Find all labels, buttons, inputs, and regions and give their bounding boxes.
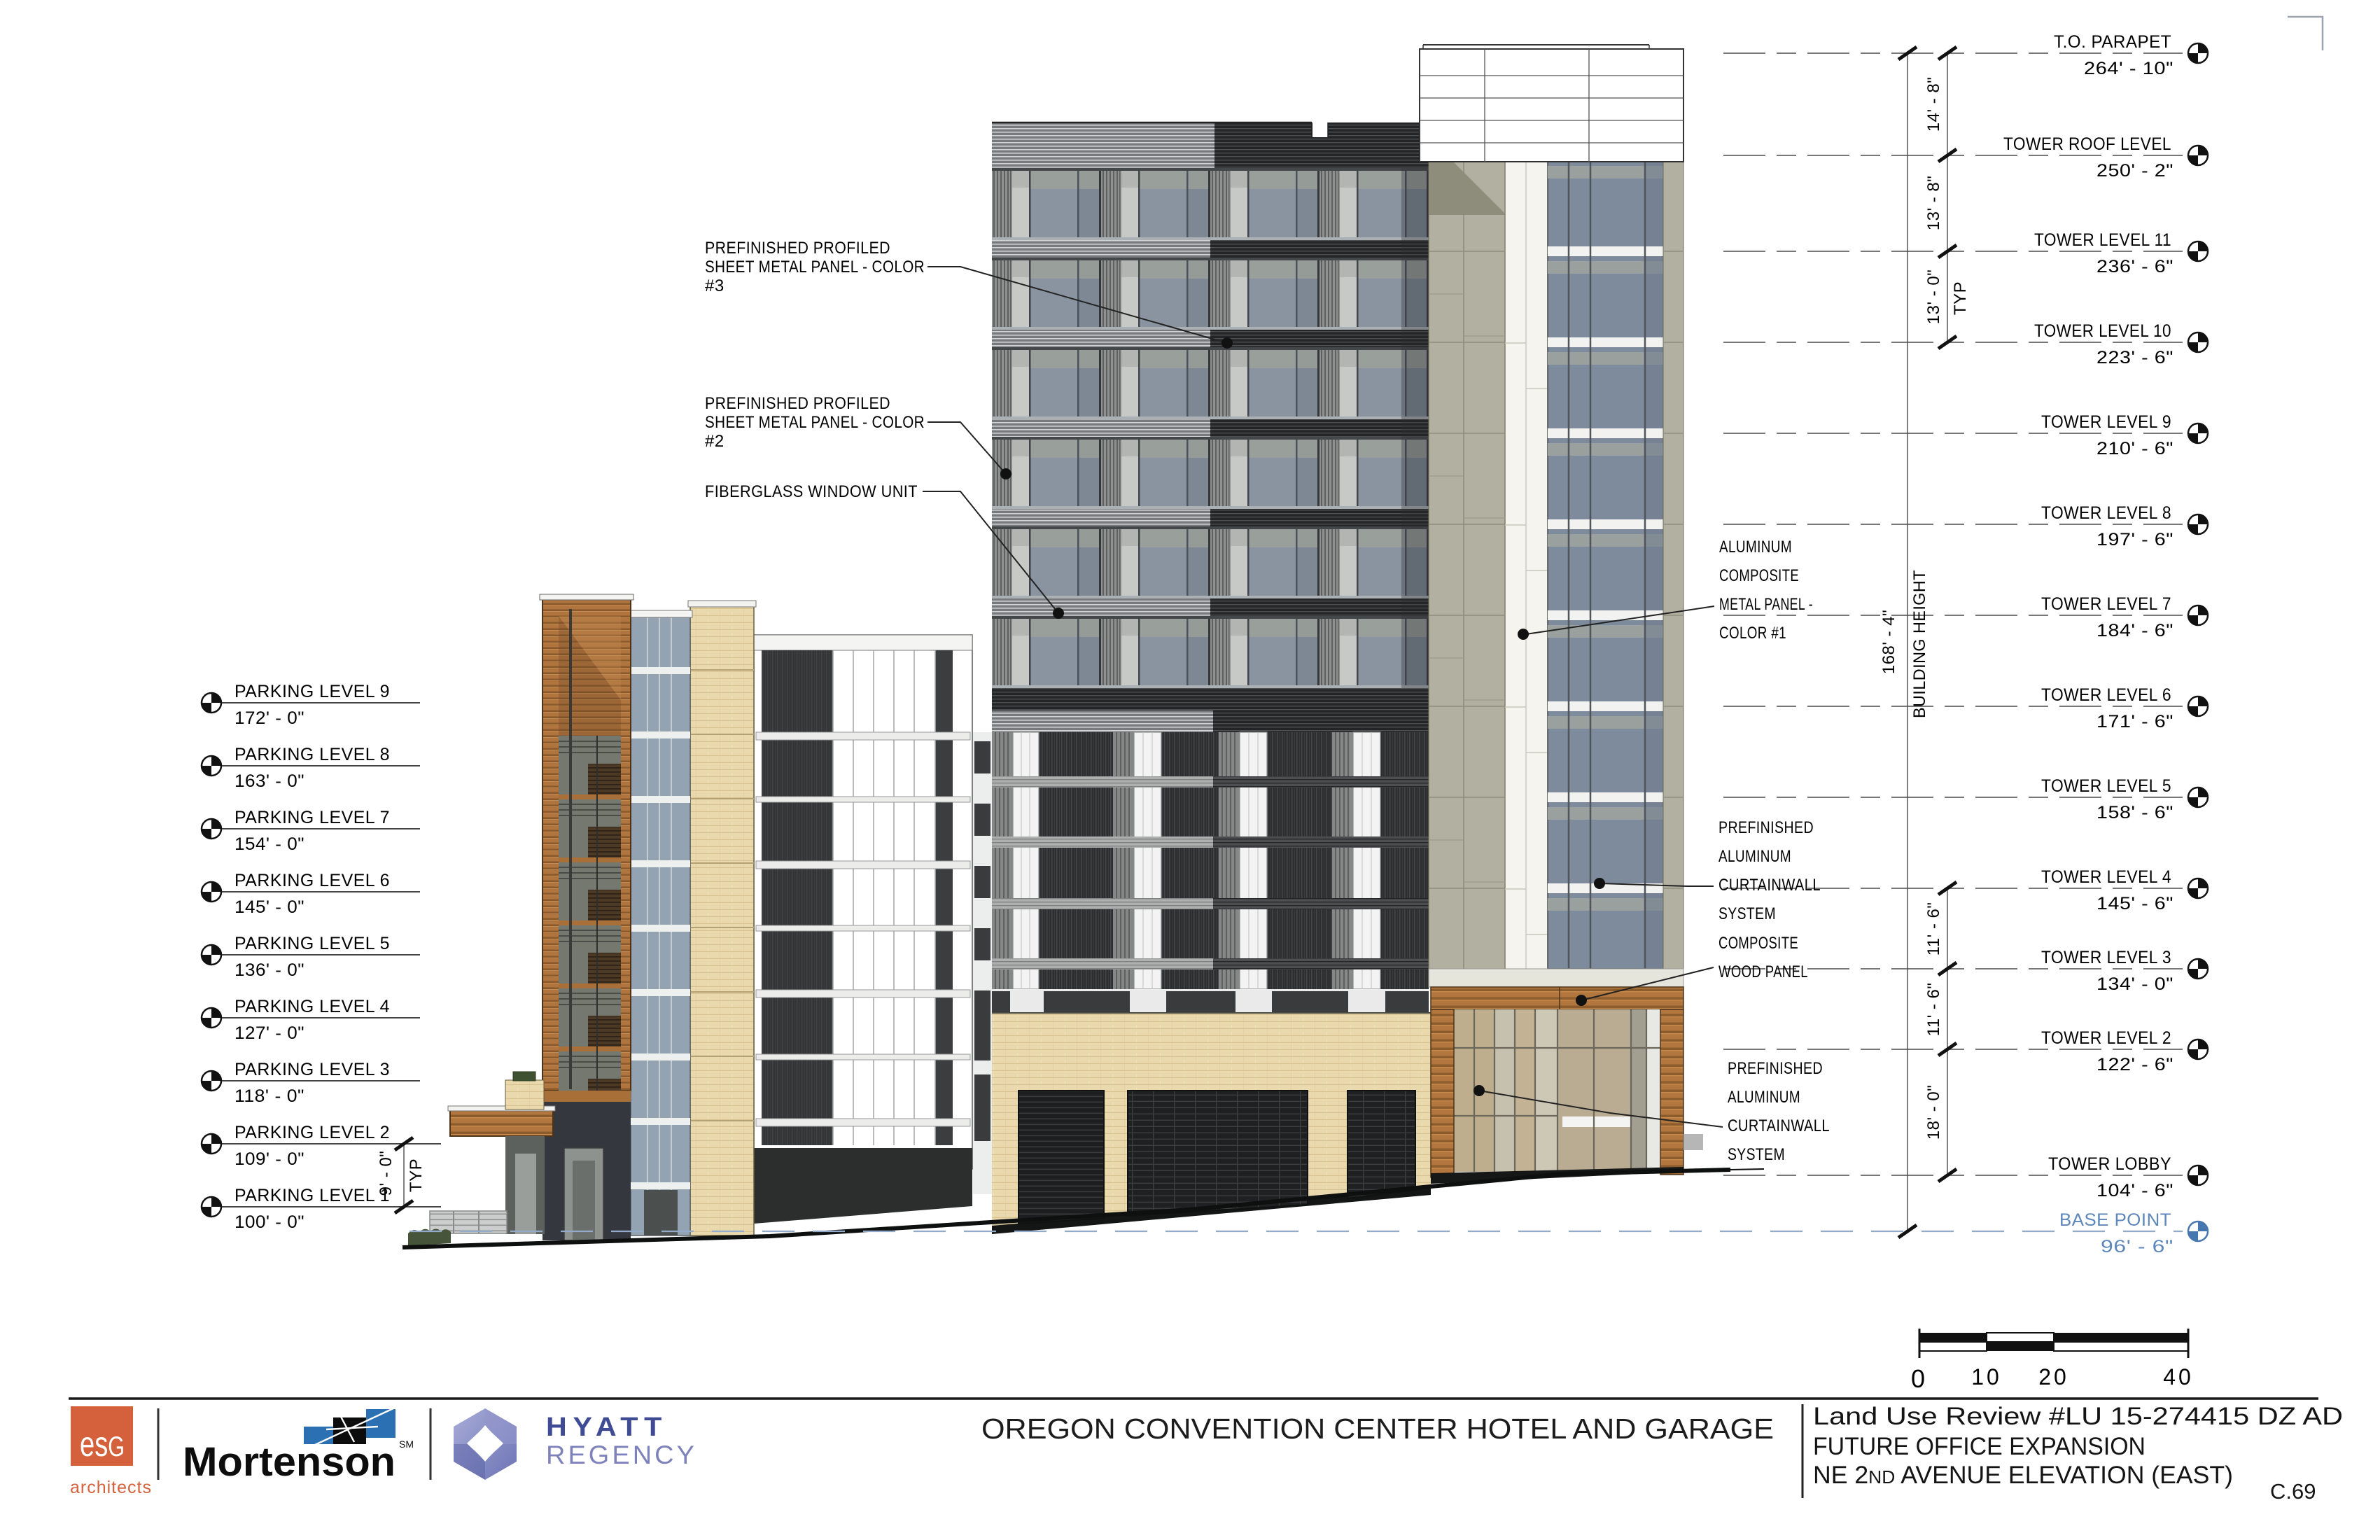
svg-text:COMPOSITE: COMPOSITE (1718, 934, 1798, 953)
svg-text:13' - 0": 13' - 0" (1924, 269, 1943, 324)
svg-text:184' - 6": 184' - 6" (2096, 621, 2173, 640)
svg-text:PREFINISHED PROFILED: PREFINISHED PROFILED (705, 394, 890, 413)
svg-text:158' - 6": 158' - 6" (2096, 803, 2173, 822)
svg-text:PARKING LEVEL 2: PARKING LEVEL 2 (234, 1123, 390, 1142)
svg-text:154' - 0": 154' - 0" (234, 834, 304, 854)
svg-text:145' - 6": 145' - 6" (2096, 894, 2173, 913)
svg-text:127' - 0": 127' - 0" (234, 1023, 304, 1043)
svg-text:TOWER LEVEL 6: TOWER LEVEL 6 (2041, 685, 2171, 705)
svg-text:PARKING LEVEL 4: PARKING LEVEL 4 (234, 997, 390, 1016)
svg-text:PARKING LEVEL 3: PARKING LEVEL 3 (234, 1060, 390, 1079)
svg-text:197' - 6": 197' - 6" (2096, 530, 2173, 549)
svg-text:TOWER LEVEL 3: TOWER LEVEL 3 (2041, 948, 2171, 967)
svg-text:136' - 0": 136' - 0" (234, 960, 304, 980)
svg-text:172' - 0": 172' - 0" (234, 708, 304, 728)
svg-text:COLOR #1: COLOR #1 (1719, 624, 1786, 643)
svg-text:223' - 6": 223' - 6" (2096, 348, 2173, 367)
svg-text:11' - 6": 11' - 6" (1924, 902, 1943, 956)
svg-text:SHEET METAL PANEL - COLOR: SHEET METAL PANEL - COLOR (705, 413, 925, 432)
svg-text:109' - 0": 109' - 0" (234, 1149, 304, 1169)
svg-text:0: 0 (1911, 1364, 1928, 1393)
svg-text:11' - 6": 11' - 6" (1924, 983, 1943, 1037)
svg-text:FUTURE OFFICE EXPANSION: FUTURE OFFICE EXPANSION (1813, 1433, 2145, 1460)
svg-text:20: 20 (2038, 1364, 2069, 1389)
svg-text:236' - 6": 236' - 6" (2096, 257, 2173, 276)
svg-text:TOWER LEVEL 7: TOWER LEVEL 7 (2041, 594, 2171, 614)
svg-text:PARKING LEVEL 9: PARKING LEVEL 9 (234, 682, 390, 701)
svg-text:TOWER LEVEL 8: TOWER LEVEL 8 (2041, 503, 2171, 523)
svg-text:COMPOSITE: COMPOSITE (1719, 566, 1799, 585)
svg-text:TYP: TYP (1951, 281, 1970, 315)
svg-text:145' - 0": 145' - 0" (234, 897, 304, 917)
svg-text:C.69: C.69 (2270, 1479, 2316, 1504)
svg-text:METAL PANEL -: METAL PANEL - (1719, 595, 1813, 614)
svg-text:118' - 0": 118' - 0" (234, 1086, 304, 1106)
svg-text:T.O. PARAPET: T.O. PARAPET (2054, 32, 2171, 52)
svg-text:96' - 6": 96' - 6" (2101, 1237, 2173, 1256)
svg-text:14' - 8": 14' - 8" (1924, 77, 1943, 132)
svg-text:9' - 0": 9' - 0" (377, 1151, 395, 1196)
svg-text:171' - 6": 171' - 6" (2096, 712, 2173, 731)
svg-text:250' - 2": 250' - 2" (2096, 161, 2173, 181)
svg-text:PARKING LEVEL 7: PARKING LEVEL 7 (234, 808, 390, 827)
svg-text:122' - 6": 122' - 6" (2096, 1055, 2173, 1074)
svg-text:163' - 0": 163' - 0" (234, 771, 304, 791)
svg-text:TOWER LEVEL 4: TOWER LEVEL 4 (2041, 867, 2171, 887)
svg-text:TOWER LOBBY: TOWER LOBBY (2048, 1154, 2171, 1174)
svg-text:Mortenson: Mortenson (183, 1439, 395, 1485)
svg-text:40: 40 (2163, 1364, 2194, 1389)
svg-text:HYATT: HYATT (546, 1413, 668, 1442)
svg-text:SYSTEM: SYSTEM (1728, 1145, 1785, 1164)
svg-text:architects: architects (70, 1478, 152, 1497)
svg-text:13' - 8": 13' - 8" (1924, 176, 1943, 230)
svg-text:ALUMINUM: ALUMINUM (1728, 1088, 1800, 1107)
svg-text:SM: SM (399, 1438, 414, 1450)
svg-text:PARKING LEVEL 5: PARKING LEVEL 5 (234, 934, 390, 953)
svg-text:SYSTEM: SYSTEM (1718, 904, 1776, 923)
svg-text:BASE POINT: BASE POINT (2059, 1210, 2171, 1230)
svg-text:264' - 10": 264' - 10" (2084, 59, 2173, 78)
svg-text:#2: #2 (705, 432, 724, 451)
svg-text:104' - 6": 104' - 6" (2096, 1181, 2173, 1200)
svg-text:PREFINISHED: PREFINISHED (1728, 1059, 1823, 1078)
svg-text:100' - 0": 100' - 0" (234, 1212, 304, 1232)
svg-text:PARKING LEVEL 1: PARKING LEVEL 1 (234, 1186, 390, 1205)
svg-text:PARKING LEVEL 6: PARKING LEVEL 6 (234, 871, 390, 890)
svg-text:TOWER LEVEL 10: TOWER LEVEL 10 (2034, 321, 2171, 341)
svg-text:TOWER LEVEL 5: TOWER LEVEL 5 (2041, 776, 2171, 796)
svg-text:Land Use Review #LU 15-274415: Land Use Review #LU 15-274415 DZ AD (1813, 1403, 2343, 1430)
svg-text:CURTAINWALL: CURTAINWALL (1728, 1116, 1830, 1135)
svg-text:PREFINISHED: PREFINISHED (1718, 818, 1814, 837)
svg-text:WOOD PANEL: WOOD PANEL (1718, 962, 1808, 981)
svg-text:TOWER ROOF LEVEL: TOWER ROOF LEVEL (2003, 134, 2171, 154)
svg-text:TOWER LEVEL 2: TOWER LEVEL 2 (2041, 1028, 2171, 1048)
svg-text:FIBERGLASS WINDOW UNIT: FIBERGLASS WINDOW UNIT (705, 482, 918, 501)
svg-text:ALUMINUM: ALUMINUM (1719, 538, 1792, 556)
svg-text:168' - 4": 168' - 4" (1879, 610, 1898, 674)
svg-text:PREFINISHED PROFILED: PREFINISHED PROFILED (705, 239, 890, 258)
svg-text:PARKING LEVEL 8: PARKING LEVEL 8 (234, 745, 390, 764)
svg-text:TOWER LEVEL 11: TOWER LEVEL 11 (2034, 230, 2171, 250)
svg-text:SHEET METAL PANEL - COLOR: SHEET METAL PANEL - COLOR (705, 258, 925, 276)
svg-text:OREGON CONVENTION CENTER HOTEL: OREGON CONVENTION CENTER HOTEL AND GARAG… (981, 1413, 1774, 1445)
svg-text:REGENCY: REGENCY (546, 1441, 697, 1469)
svg-text:#3: #3 (705, 276, 724, 295)
svg-text:134' - 0": 134' - 0" (2096, 974, 2173, 994)
svg-text:ALUMINUM: ALUMINUM (1718, 847, 1791, 866)
svg-text:CURTAINWALL: CURTAINWALL (1718, 876, 1821, 895)
svg-text:210' - 6": 210' - 6" (2096, 439, 2173, 458)
svg-text:TOWER LEVEL 9: TOWER LEVEL 9 (2041, 412, 2171, 432)
svg-text:TYP: TYP (407, 1158, 426, 1192)
svg-text:BUILDING HEIGHT: BUILDING HEIGHT (1910, 570, 1929, 718)
svg-text:10: 10 (1971, 1364, 2002, 1389)
svg-text:18' - 0": 18' - 0" (1924, 1085, 1943, 1140)
